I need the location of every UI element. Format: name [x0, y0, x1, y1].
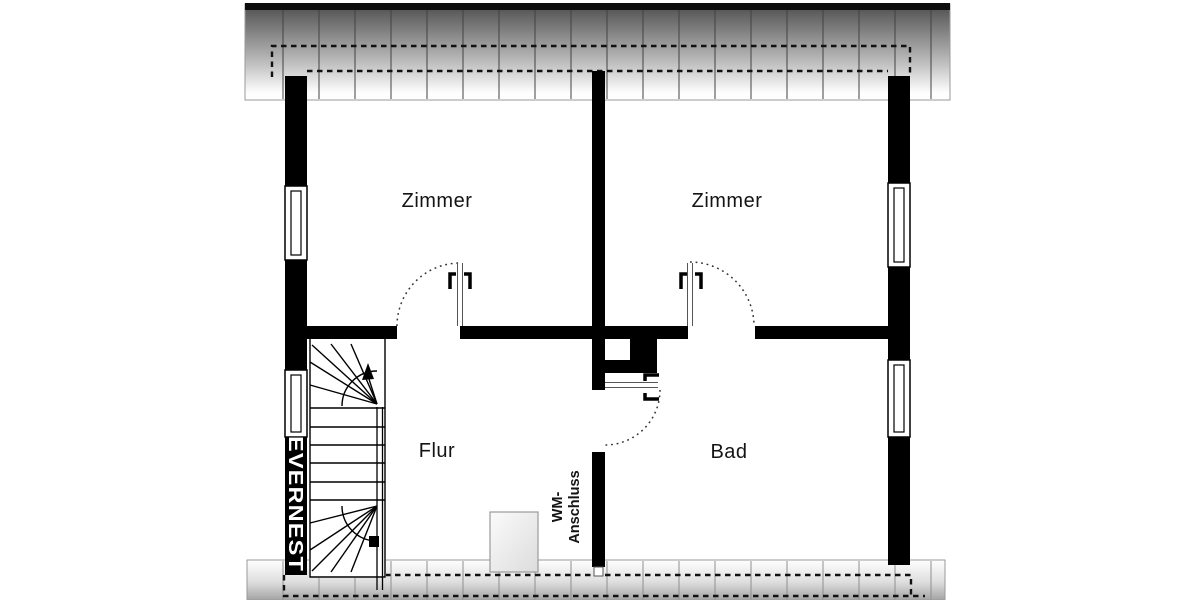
label-bad: Bad: [710, 441, 747, 463]
window-left-upper: [285, 186, 307, 260]
staircase: [309, 339, 386, 590]
wall-horizontal-d: [755, 326, 910, 339]
wall-right-upper: [888, 76, 910, 183]
wall-center-lower: [592, 452, 605, 567]
wall-horizontal-b: [460, 326, 592, 339]
wall-horizontal-a: [285, 326, 397, 339]
roof-ridge-bar: [245, 3, 950, 10]
wall-right-middle: [888, 267, 910, 360]
label-zimmer-left: Zimmer: [402, 190, 473, 212]
window-left-lower: [285, 370, 307, 437]
washing-machine-box: [490, 512, 538, 572]
wall-right-lower: [888, 437, 910, 565]
duct-shaft-horizontal: [605, 360, 657, 373]
door-swing-arcs: [397, 262, 754, 445]
floor-plan-drawing: Zimmer Zimmer Flur Bad WM- Anschluss EVE…: [0, 0, 1200, 600]
label-flur: Flur: [419, 440, 455, 462]
floor-plan: Zimmer Zimmer Flur Bad WM- Anschluss EVE…: [0, 0, 1200, 600]
wall-center-upper: [592, 71, 605, 390]
wall-left-upper: [285, 76, 307, 186]
watermark-evernest: EVERNEST: [284, 436, 306, 572]
stair-newel-post: [369, 536, 379, 547]
window-right-lower: [888, 360, 910, 437]
label-wm-line1: WM-: [550, 492, 566, 523]
doors: [397, 262, 754, 445]
label-zimmer-right: Zimmer: [692, 190, 763, 212]
wall-horizontal-c: [605, 326, 688, 339]
door-leaves: [458, 263, 693, 388]
wall-left-middle: [285, 260, 307, 370]
door-arc-zimmer-right: [690, 262, 754, 326]
wall-center-end-cap: [594, 567, 603, 576]
label-wm-line2: Anschluss: [567, 470, 583, 543]
window-right-upper: [888, 183, 910, 267]
